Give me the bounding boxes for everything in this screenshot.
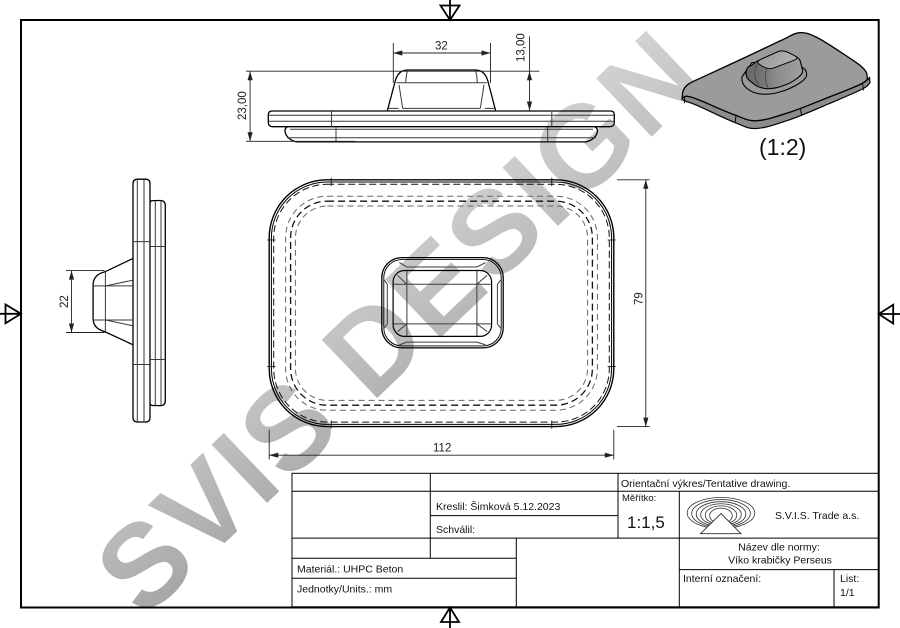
svg-text:1:1,5: 1:1,5: [627, 513, 665, 532]
svg-text:Název dle normy:: Název dle normy:: [738, 542, 820, 554]
svg-text:Měřítko:: Měřítko:: [622, 493, 656, 504]
svg-text:1/1: 1/1: [840, 587, 855, 599]
svg-text:(1:2): (1:2): [759, 134, 806, 160]
svg-text:S.V.I.S. Trade a.s.: S.V.I.S. Trade a.s.: [775, 510, 859, 522]
svg-text:22: 22: [59, 295, 71, 308]
svg-text:Schválil:: Schválil:: [436, 524, 475, 536]
svg-text:Interní označení:: Interní označení:: [683, 573, 761, 585]
svg-text:Jednotky/Units.: mm: Jednotky/Units.: mm: [297, 584, 392, 596]
svg-text:Materiál.: UHPC Beton: Materiál.: UHPC Beton: [297, 564, 403, 576]
svg-text:23,00: 23,00: [237, 91, 249, 120]
svg-text:List:: List:: [840, 573, 859, 585]
svg-text:Kreslil: Šimková 5.12.2023: Kreslil: Šimková 5.12.2023: [436, 500, 560, 513]
svg-text:79: 79: [634, 292, 646, 305]
svg-text:32: 32: [435, 41, 448, 53]
svg-text:112: 112: [433, 443, 451, 455]
svg-text:Víko krabičky Perseus: Víko krabičky Perseus: [728, 555, 832, 567]
svg-text:Orientační výkres/Tentative dr: Orientační výkres/Tentative drawing.: [621, 478, 790, 490]
svg-text:13,00: 13,00: [516, 33, 528, 62]
